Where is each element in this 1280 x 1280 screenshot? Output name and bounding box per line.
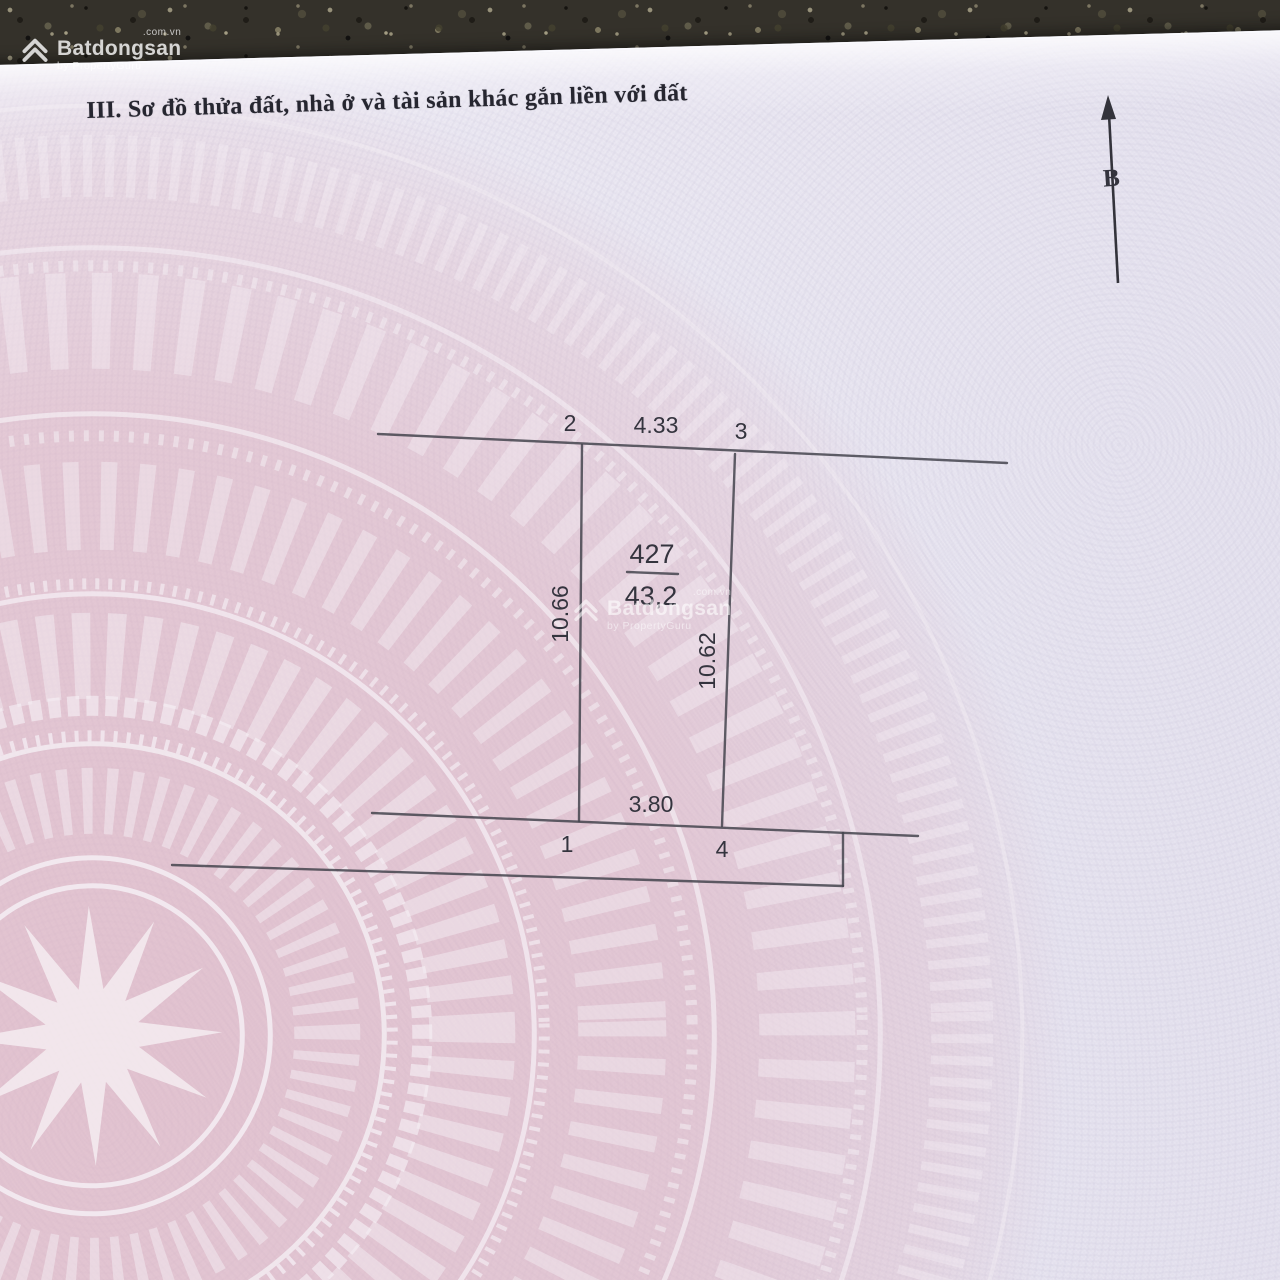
parcel-diagram: 2 4.33 3 427 43,2 10.66 10.62 3.80 1 4 B (0, 0, 1280, 1280)
vertex-4-label: 4 (716, 836, 729, 862)
vertex-1-label: 1 (561, 831, 574, 857)
parcel-number-label: 427 (629, 539, 674, 569)
certificate-photo: III. Sơ đồ thửa đất, nhà ở và tài sản kh… (0, 0, 1280, 1280)
boundary-left-line (579, 445, 582, 821)
boundary-right-line (722, 454, 735, 826)
edge-right-length-label: 10.62 (694, 632, 720, 690)
vertex-3-label: 3 (735, 418, 748, 444)
north-arrow-head (1101, 95, 1116, 120)
lower-boundary-line (172, 865, 843, 886)
fraction-bar (627, 572, 678, 574)
north-label: B (1102, 164, 1121, 192)
boundary-top-line (378, 434, 1007, 463)
edge-left-length-label: 10.66 (547, 585, 573, 643)
parcel-area-label: 43,2 (625, 581, 678, 611)
edge-bottom-length-label: 3.80 (629, 791, 674, 817)
vertex-2-label: 2 (564, 410, 577, 436)
edge-top-length-label: 4.33 (634, 412, 679, 438)
